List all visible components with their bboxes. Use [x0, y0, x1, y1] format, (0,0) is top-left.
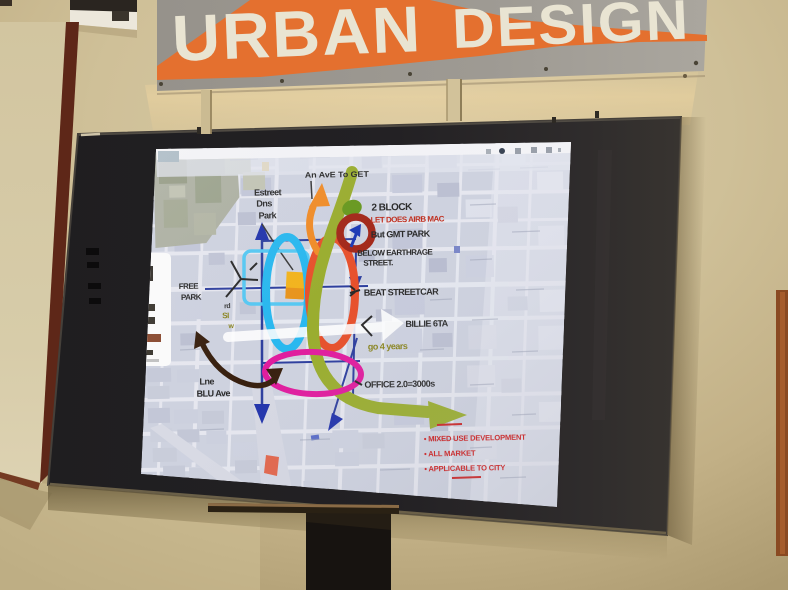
- svg-text:DESIGN: DESIGN: [451, 0, 691, 60]
- svg-text:URBAN: URBAN: [171, 0, 424, 75]
